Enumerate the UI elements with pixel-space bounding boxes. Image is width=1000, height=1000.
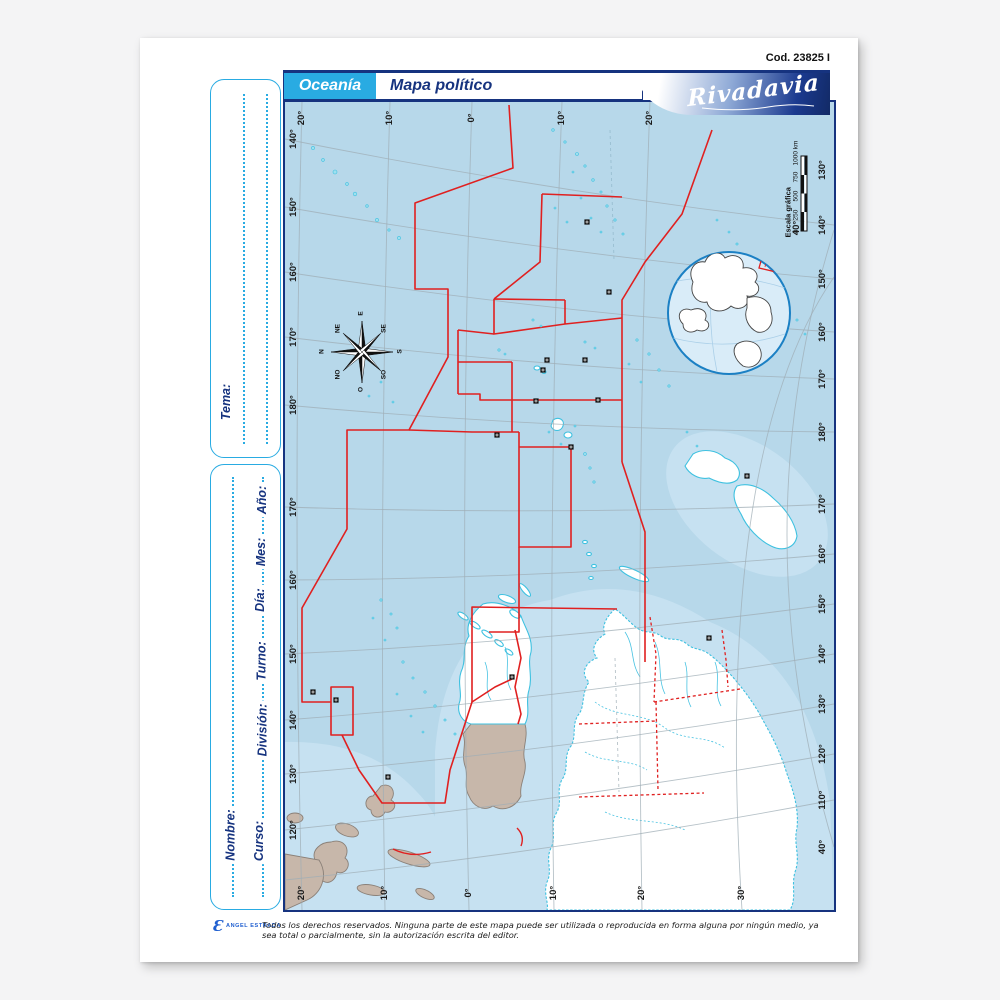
inset-globe	[668, 252, 805, 376]
mes-label: Mes:	[253, 535, 269, 569]
latitude-label: 10°	[384, 101, 396, 135]
scale-tick: 1000 km	[793, 141, 800, 166]
tema-dotted-line-1	[243, 94, 245, 444]
compass-n: N	[319, 344, 328, 360]
longitude-label: 150°	[817, 262, 829, 296]
division-label: División:	[254, 701, 270, 760]
longitude-label: 130°	[817, 153, 829, 187]
longitude-label: 140°	[288, 122, 300, 156]
longitude-label: 170°	[288, 490, 300, 524]
compass-no: NO	[335, 367, 344, 383]
map-title: Mapa político	[390, 77, 492, 95]
longitude-label: 160°	[288, 255, 300, 289]
turno-label: Turno:	[254, 638, 270, 683]
region-label: Oceanía	[299, 77, 361, 95]
longitude-label: 160°	[817, 537, 829, 571]
oceania-map: N E S O NE SE SO NO Escala gráfica 0 250…	[283, 100, 836, 912]
compass-o: O	[358, 382, 367, 398]
brand-flourish	[698, 103, 818, 111]
longitude-label: 130°	[817, 687, 829, 721]
latitude-label: 20°	[644, 101, 656, 135]
latitude-label: 0°	[466, 101, 478, 135]
longitude-label: 160°	[288, 563, 300, 597]
product-code: Cod. 23825 I	[570, 52, 830, 64]
compass-e: E	[358, 306, 367, 322]
compass-s: S	[397, 344, 406, 360]
student-data-box: Año: Mes: Día: Turno: División: Nombre: …	[210, 464, 281, 910]
brand-banner: Rivadavia	[638, 73, 830, 115]
longitude-label: 110°	[817, 783, 829, 817]
map-title-box: Mapa político	[376, 73, 642, 99]
dia-label: Día:	[252, 585, 268, 615]
latitude-label: 10°	[548, 876, 560, 910]
copyright-text: Todos los derechos reservados. Ninguna p…	[262, 920, 828, 940]
map-sheet: Cod. 23825 I Oceanía Mapa político Rivad…	[140, 38, 858, 962]
longitude-label: 180°	[817, 415, 829, 449]
longitude-label: 140°	[817, 637, 829, 671]
longitude-label: 150°	[288, 190, 300, 224]
latitude-label: 20°	[296, 876, 308, 910]
latitude-label: 0°	[463, 876, 475, 910]
longitude-label: 160°	[817, 315, 829, 349]
longitude-label: 140°	[817, 208, 829, 242]
latitude-label: 20°	[636, 876, 648, 910]
longitude-label: 170°	[817, 487, 829, 521]
tema-dotted-line-2	[266, 94, 268, 444]
longitude-label: 150°	[288, 637, 300, 671]
longitude-label: 170°	[817, 362, 829, 396]
nombre-label: Nombre:	[223, 806, 239, 863]
scale-tick: 500	[793, 191, 800, 202]
ano-label: Año:	[254, 483, 270, 517]
compass-so: SO	[381, 367, 390, 383]
latitude-label: 40°	[817, 830, 829, 864]
longitude-label: 170°	[288, 320, 300, 354]
map-artwork	[285, 102, 834, 910]
longitude-label: 130°	[288, 757, 300, 791]
latitude-label: 30°	[736, 876, 748, 910]
curso-label: Curso:	[251, 818, 267, 864]
tema-box: Tema:	[210, 79, 281, 458]
header-bar: Oceanía Mapa político	[283, 73, 643, 100]
scale-tick: 750	[793, 172, 800, 183]
longitude-label: 150°	[817, 587, 829, 621]
latitude-label: 10°	[556, 101, 568, 135]
compass-ne: NE	[335, 321, 344, 337]
latitude-label: 10°	[379, 876, 391, 910]
region-badge: Oceanía	[284, 73, 376, 99]
footer: Ɛ ANGEL ESTRADA Todos los derechos reser…	[210, 917, 832, 937]
publisher-logo-icon: Ɛ	[212, 917, 223, 935]
compass-se: SE	[381, 321, 390, 337]
latitude-label: 40°	[791, 211, 803, 245]
tema-label: Tema:	[218, 381, 234, 423]
longitude-label: 120°	[288, 813, 300, 847]
desk-background: Cod. 23825 I Oceanía Mapa político Rivad…	[0, 0, 1000, 1000]
longitude-label: 140°	[288, 703, 300, 737]
longitude-label: 120°	[817, 737, 829, 771]
longitude-label: 180°	[288, 388, 300, 422]
